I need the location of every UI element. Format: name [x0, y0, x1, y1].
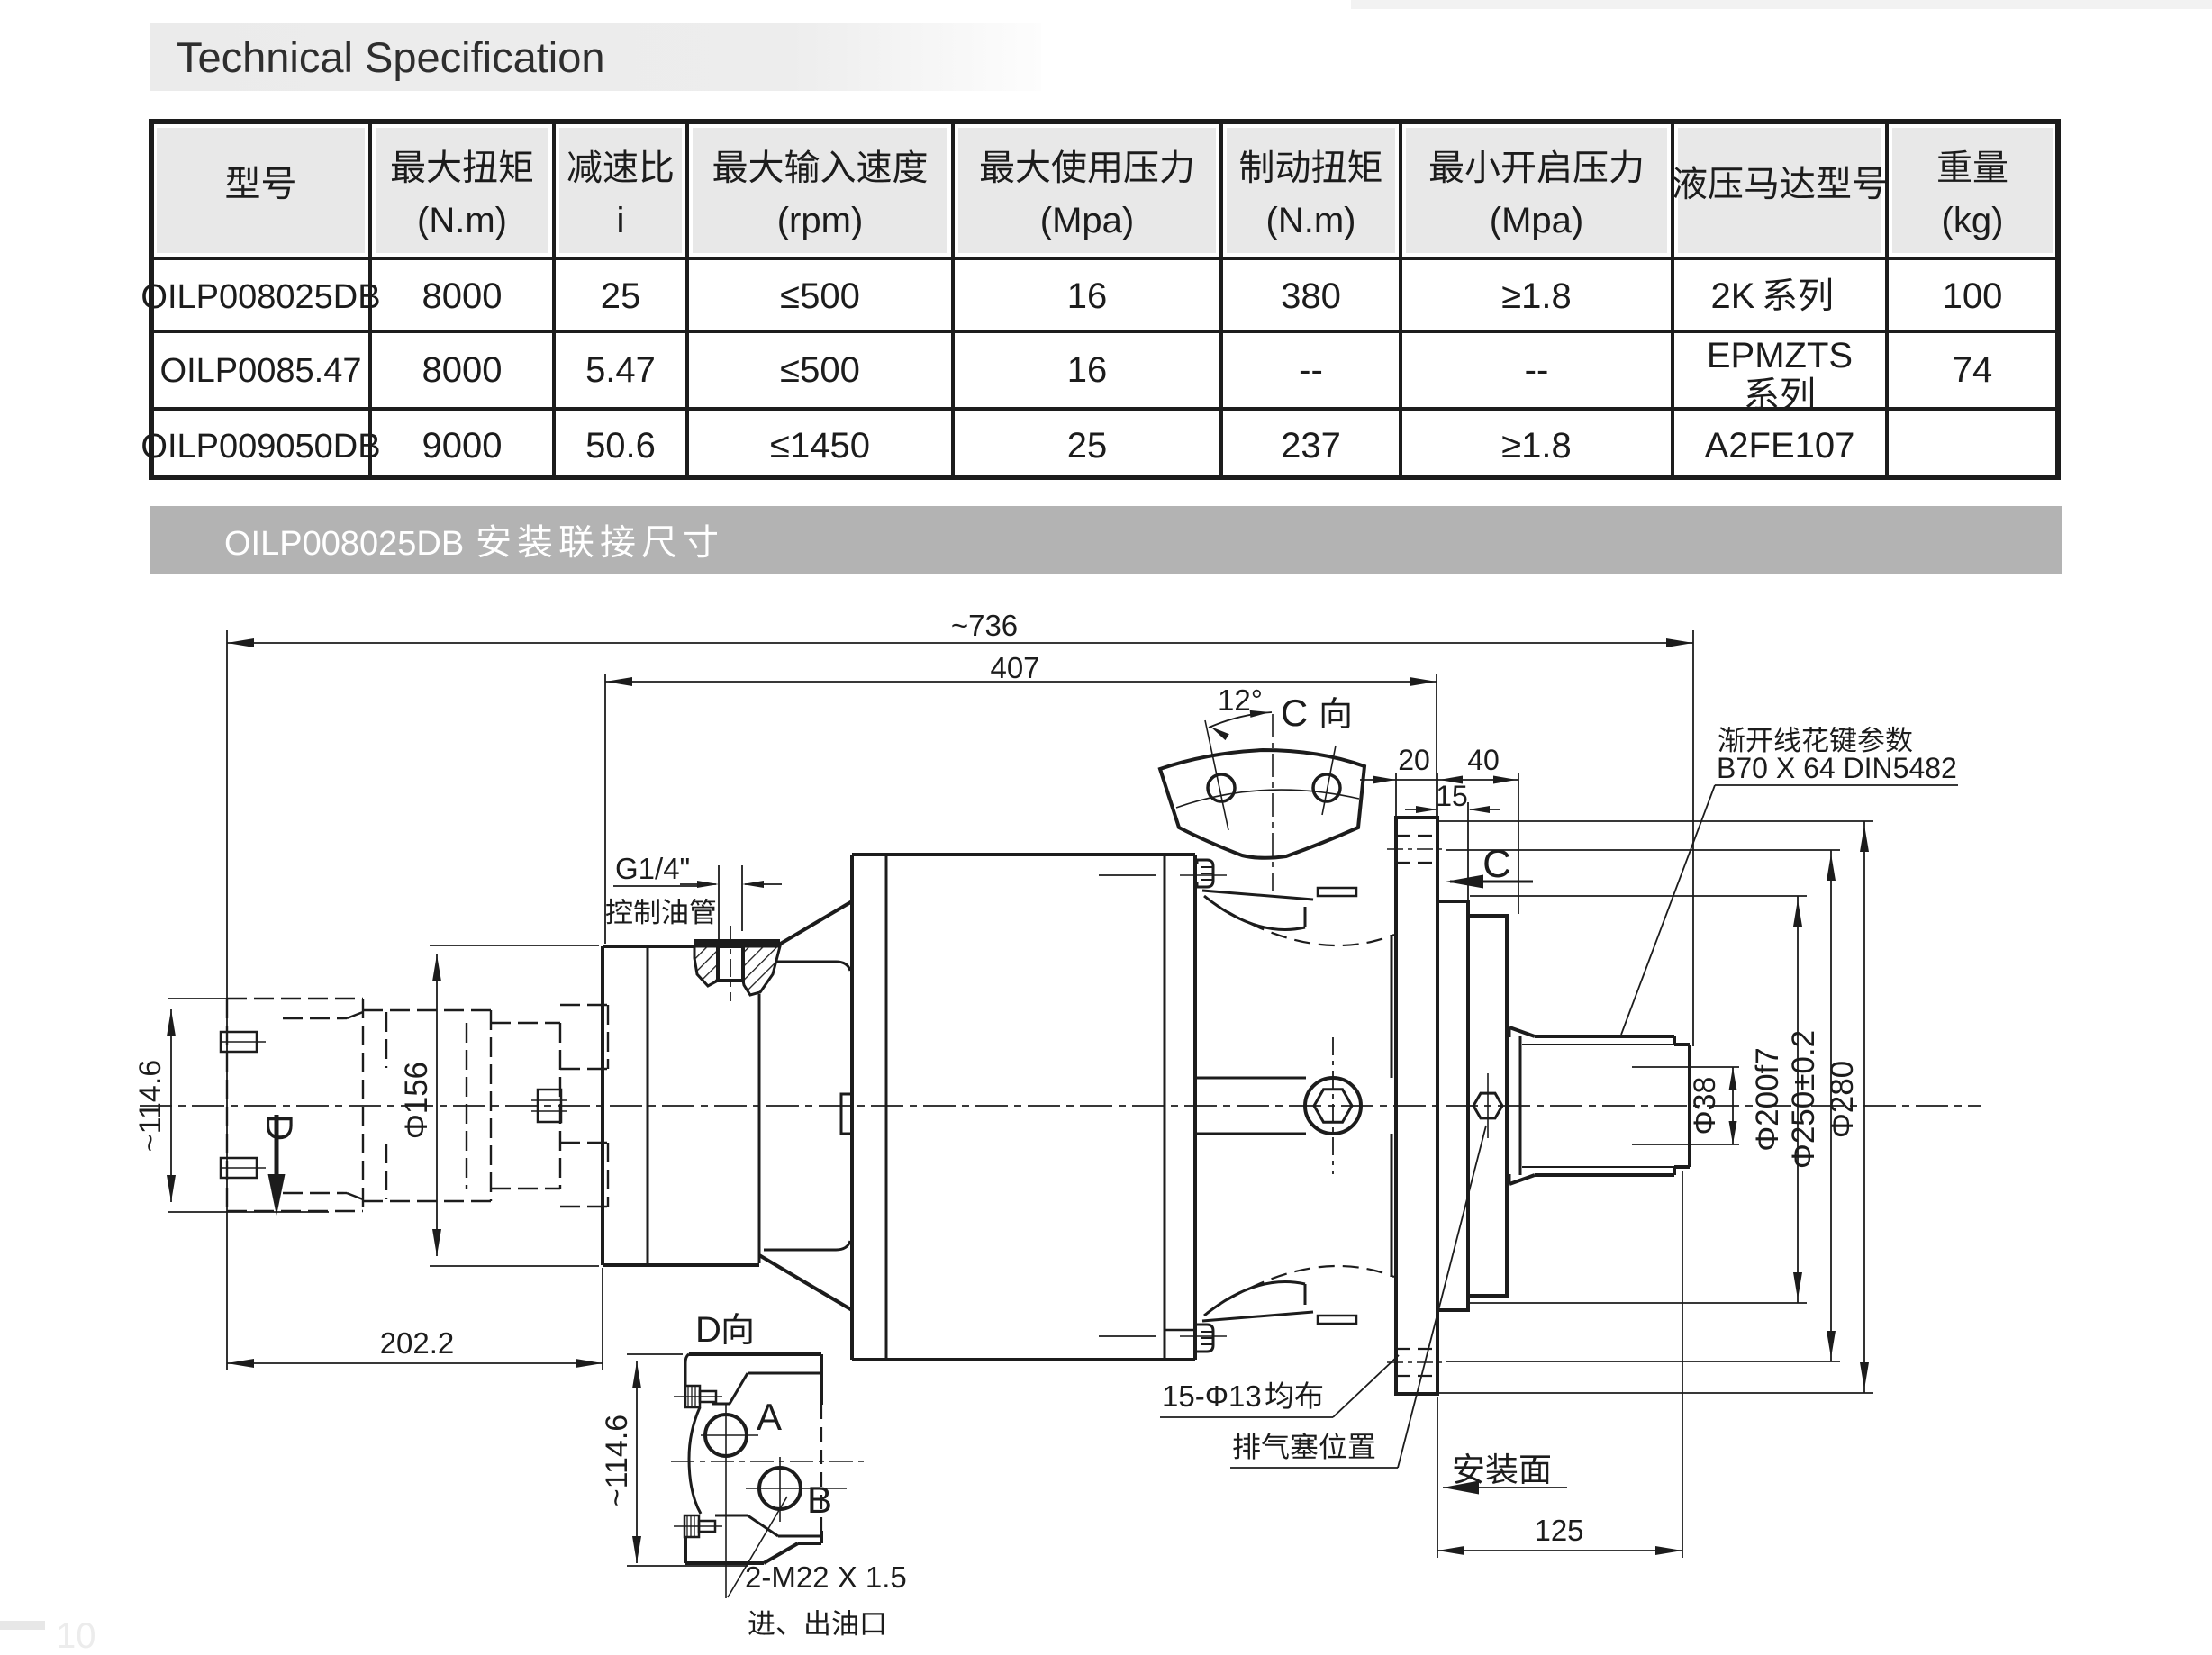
- svg-text:B70 X 64 DIN5482: B70 X 64 DIN5482: [1717, 752, 1957, 784]
- svg-text:C: C: [1281, 692, 1308, 734]
- svg-text:EPMZTS: EPMZTS: [1707, 336, 1853, 375]
- svg-text:16: 16: [1067, 276, 1108, 316]
- svg-text:74: 74: [1953, 350, 1993, 390]
- svg-text:25: 25: [1067, 426, 1108, 466]
- svg-text:D: D: [695, 1310, 721, 1350]
- svg-text:A: A: [757, 1396, 782, 1438]
- svg-text:≥1.8: ≥1.8: [1501, 276, 1572, 316]
- svg-text:2K: 2K: [1711, 276, 1755, 316]
- svg-text:OILP008025DB: OILP008025DB: [141, 278, 380, 316]
- svg-text:(Mpa): (Mpa): [1040, 201, 1134, 240]
- svg-text:~114.6: ~114.6: [133, 1060, 168, 1152]
- svg-text:15: 15: [1436, 780, 1468, 812]
- svg-text:~114.6: ~114.6: [600, 1415, 634, 1506]
- svg-text:≤500: ≤500: [780, 276, 860, 316]
- svg-text:i: i: [617, 201, 625, 240]
- svg-text:12°: 12°: [1218, 683, 1263, 717]
- svg-text:≤1450: ≤1450: [770, 426, 870, 466]
- svg-text:--: --: [1525, 350, 1549, 390]
- svg-text:(N.m): (N.m): [417, 201, 507, 240]
- svg-text:380: 380: [1281, 276, 1341, 316]
- svg-text:Technical Specification: Technical Specification: [177, 33, 605, 81]
- svg-text:50.6: 50.6: [585, 426, 656, 466]
- svg-text:407: 407: [990, 651, 1039, 684]
- svg-text:≤500: ≤500: [780, 350, 860, 390]
- svg-text:(rpm): (rpm): [777, 201, 864, 240]
- svg-text:25: 25: [601, 276, 641, 316]
- svg-text:40: 40: [1467, 744, 1500, 776]
- svg-text:9000: 9000: [422, 426, 503, 466]
- svg-text:(N.m): (N.m): [1266, 201, 1356, 240]
- svg-text:100: 100: [1943, 276, 2003, 316]
- svg-text:125: 125: [1534, 1514, 1583, 1547]
- svg-text:--: --: [1299, 350, 1323, 390]
- svg-text:A2FE107: A2FE107: [1705, 426, 1855, 466]
- svg-text:2-M22 X 1.5: 2-M22 X 1.5: [745, 1560, 907, 1594]
- svg-text:G1/4": G1/4": [615, 852, 690, 885]
- svg-text:Φ156: Φ156: [399, 1062, 434, 1139]
- svg-text:10: 10: [56, 1616, 96, 1655]
- svg-text:202.2: 202.2: [380, 1326, 455, 1360]
- svg-text:(kg): (kg): [1942, 201, 2004, 240]
- svg-text:237: 237: [1281, 426, 1341, 466]
- svg-text:≥1.8: ≥1.8: [1501, 426, 1572, 466]
- svg-text:8000: 8000: [422, 276, 503, 316]
- svg-text:Φ200f7: Φ200f7: [1750, 1047, 1785, 1152]
- svg-text:Φ250±0.2: Φ250±0.2: [1786, 1030, 1821, 1169]
- svg-text:Φ38: Φ38: [1688, 1077, 1722, 1135]
- svg-text:15-Φ13: 15-Φ13: [1162, 1379, 1262, 1413]
- svg-text:C: C: [1482, 842, 1511, 886]
- svg-text:OILP0085.47: OILP0085.47: [160, 352, 362, 390]
- svg-text:Φ280: Φ280: [1825, 1061, 1860, 1138]
- svg-text:(Mpa): (Mpa): [1490, 201, 1583, 240]
- svg-text:16: 16: [1067, 350, 1108, 390]
- svg-text:20: 20: [1398, 744, 1430, 776]
- svg-text:8000: 8000: [422, 350, 503, 390]
- svg-text:D: D: [258, 1114, 301, 1141]
- svg-text:5.47: 5.47: [585, 350, 656, 390]
- svg-text:OILP008025DB: OILP008025DB: [224, 525, 464, 563]
- svg-text:~736: ~736: [951, 609, 1018, 642]
- svg-text:OILP009050DB: OILP009050DB: [141, 428, 380, 466]
- svg-text:B: B: [807, 1479, 832, 1521]
